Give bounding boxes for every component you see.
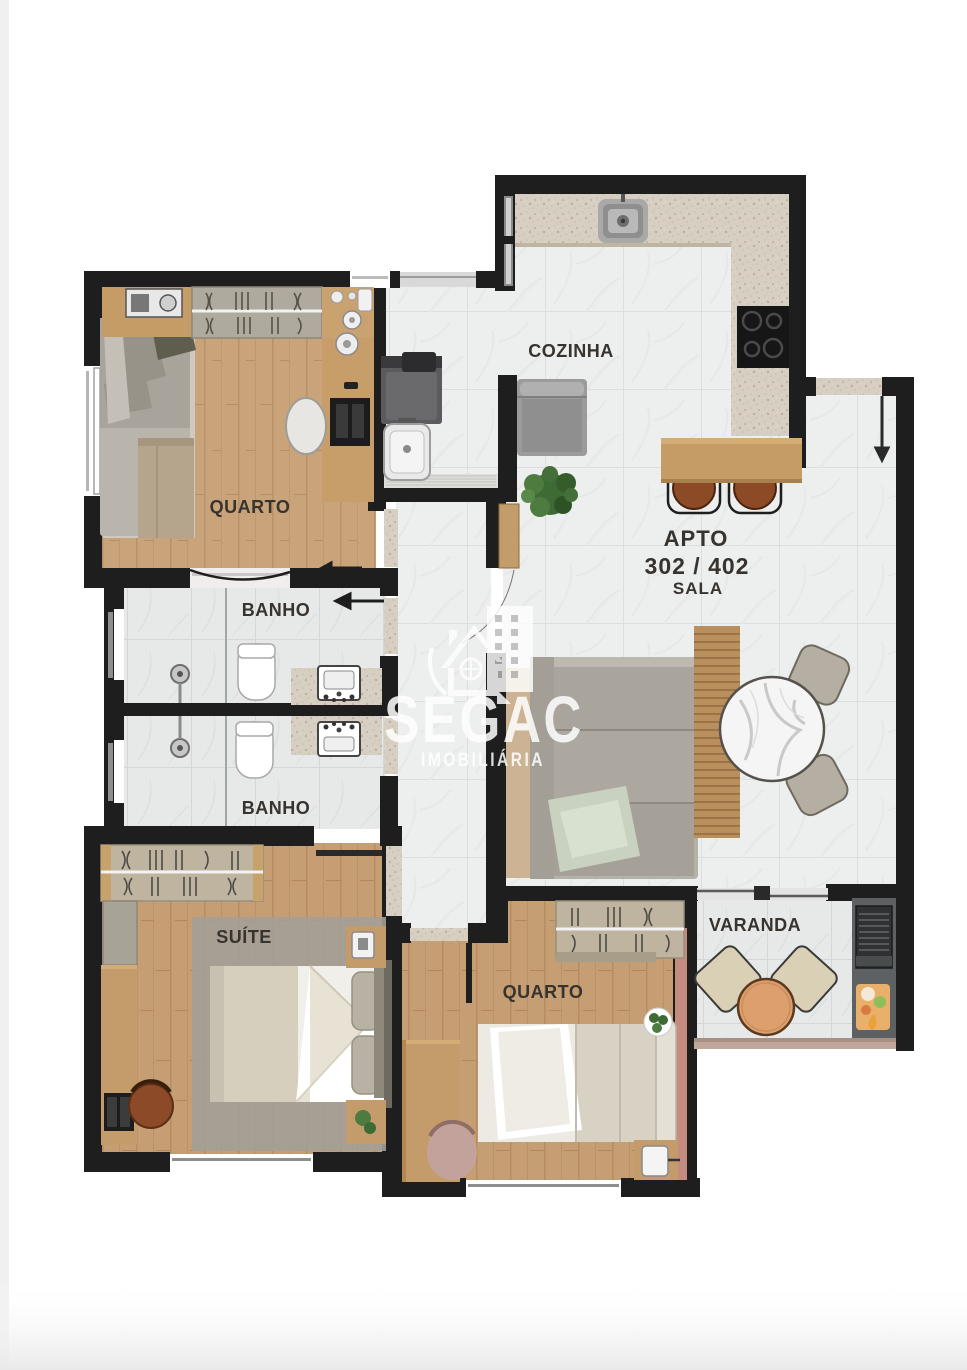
svg-text:BANHO: BANHO <box>242 600 311 620</box>
svg-text:QUARTO: QUARTO <box>503 982 584 1002</box>
svg-text:COZINHA: COZINHA <box>528 341 614 361</box>
svg-text:APTO: APTO <box>664 526 729 551</box>
svg-text:VARANDA: VARANDA <box>709 915 801 935</box>
svg-text:IMOBILIÁRIA: IMOBILIÁRIA <box>421 749 545 771</box>
svg-text:SALA: SALA <box>673 579 723 598</box>
svg-text:SEGAC: SEGAC <box>384 682 584 756</box>
svg-text:BANHO: BANHO <box>242 798 311 818</box>
svg-text:SUÍTE: SUÍTE <box>216 926 272 947</box>
svg-text:QUARTO: QUARTO <box>210 497 291 517</box>
svg-text:302 / 402: 302 / 402 <box>645 553 750 579</box>
